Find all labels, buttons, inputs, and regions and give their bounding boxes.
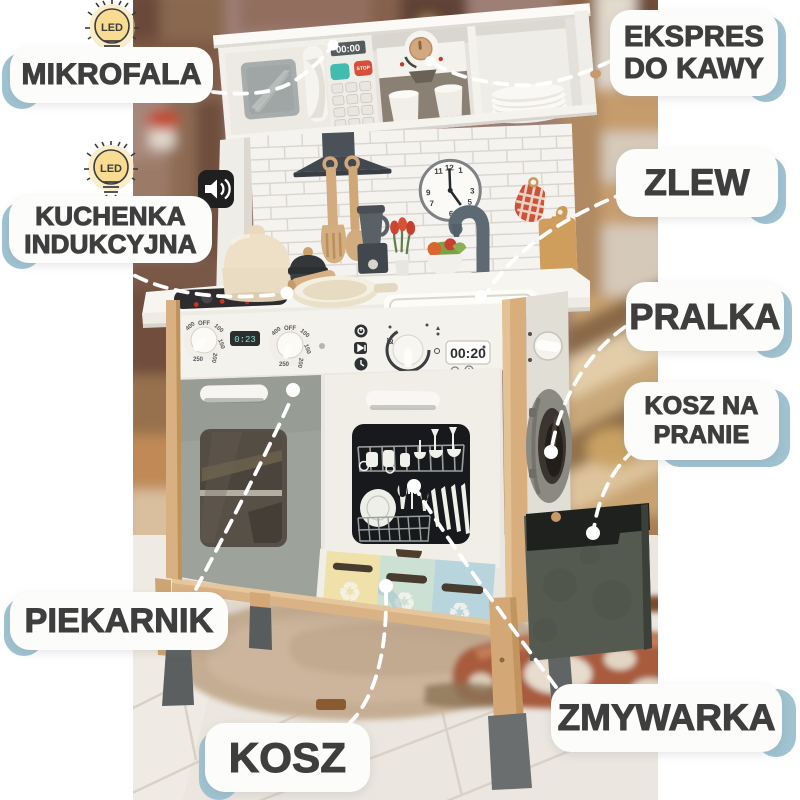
svg-text:LED: LED — [101, 22, 123, 34]
svg-text:OFF: OFF — [198, 321, 210, 327]
svg-text:0:23: 0:23 — [234, 335, 256, 345]
svg-text:STOP: STOP — [356, 65, 371, 72]
svg-text:11: 11 — [434, 167, 443, 176]
svg-text:OFF: OFF — [284, 326, 296, 332]
svg-text:250: 250 — [193, 357, 204, 363]
svg-text:250: 250 — [279, 362, 290, 368]
svg-text:00:20: 00:20 — [450, 345, 486, 361]
svg-text:LED: LED — [100, 163, 122, 175]
svg-text:00:00: 00:00 — [336, 43, 361, 56]
